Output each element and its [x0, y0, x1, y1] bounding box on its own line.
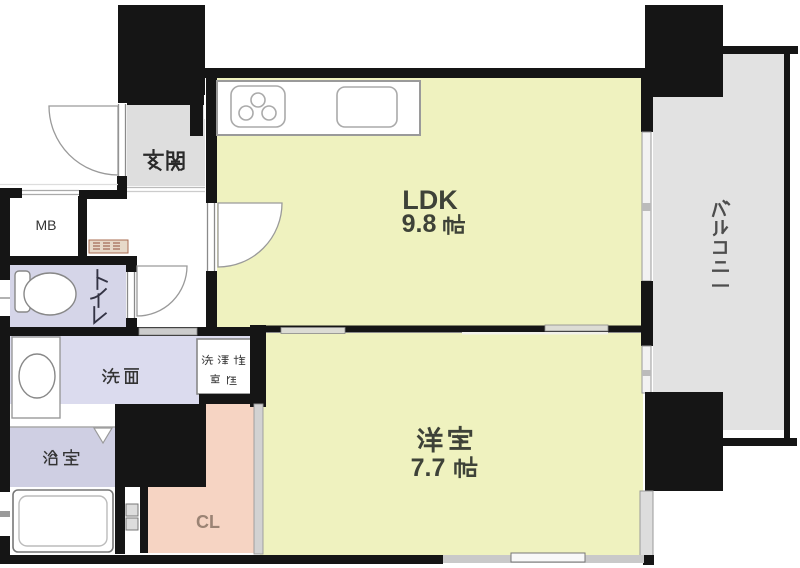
svg-text:9.8: 9.8	[402, 210, 437, 238]
svg-text:7.7: 7.7	[411, 454, 446, 482]
svg-text:MB: MB	[36, 217, 57, 233]
svg-text:CL: CL	[196, 512, 220, 532]
